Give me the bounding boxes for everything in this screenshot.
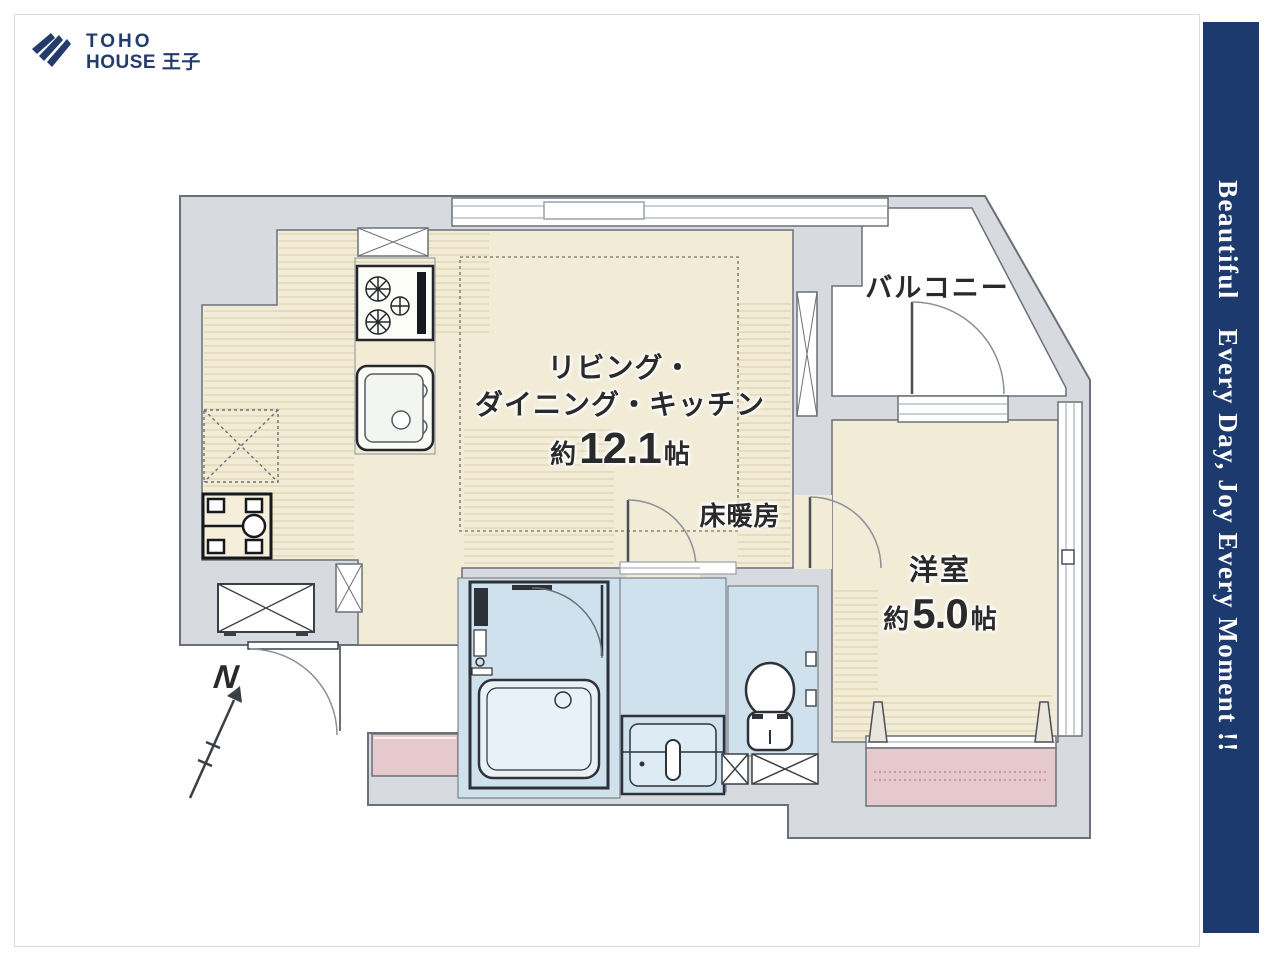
shoe-cabinet xyxy=(218,584,314,636)
toilet-room xyxy=(728,586,818,756)
western-size-prefix: 約 xyxy=(883,599,909,636)
kitchen-stove xyxy=(357,266,433,340)
pipe-space xyxy=(797,292,817,416)
washroom xyxy=(620,562,736,794)
bathroom xyxy=(458,578,620,798)
ldk-size-unit: 帖 xyxy=(664,434,690,471)
ldk-top-window xyxy=(452,198,888,226)
ldk-room-label: リビング・ ダイニング・キッチン 約 12.1 帖 xyxy=(440,349,800,474)
entrance-door xyxy=(248,642,340,735)
hall-storage xyxy=(336,564,362,612)
north-label: N xyxy=(201,658,250,696)
entrance-alcove xyxy=(372,734,458,776)
ldk-label-line1: リビング・ xyxy=(440,349,800,386)
western-room-size: 約 5.0 帖 xyxy=(840,590,1040,638)
ldk-size-prefix: 約 xyxy=(550,434,576,471)
washing-machine-space xyxy=(203,494,271,558)
western-room-label: 洋室 約 5.0 帖 xyxy=(840,553,1040,638)
floor-plan-flyer: { "page": { "background": "#ffffff", "fr… xyxy=(0,0,1280,960)
kitchen-sink xyxy=(357,366,433,450)
western-size-unit: 帖 xyxy=(971,599,997,636)
hall-cabinets xyxy=(722,754,818,784)
north-arrow xyxy=(190,686,242,798)
kitchen-hood-box xyxy=(358,228,428,256)
ldk-size-value: 12.1 xyxy=(579,424,661,474)
ldk-size: 約 12.1 帖 xyxy=(440,424,800,474)
balcony-window xyxy=(898,396,1008,422)
floor-plan-drawing xyxy=(0,0,1280,960)
floor-heating-label: 床暖房 xyxy=(685,496,795,533)
western-room-side-window xyxy=(1058,402,1082,736)
ldk-label-line2: ダイニング・キッチン xyxy=(440,386,800,423)
western-size-value: 5.0 xyxy=(912,590,967,638)
balcony-label: バルコニー xyxy=(840,266,1035,305)
western-room-name: 洋室 xyxy=(840,553,1040,589)
lower-balcony xyxy=(866,748,1056,806)
